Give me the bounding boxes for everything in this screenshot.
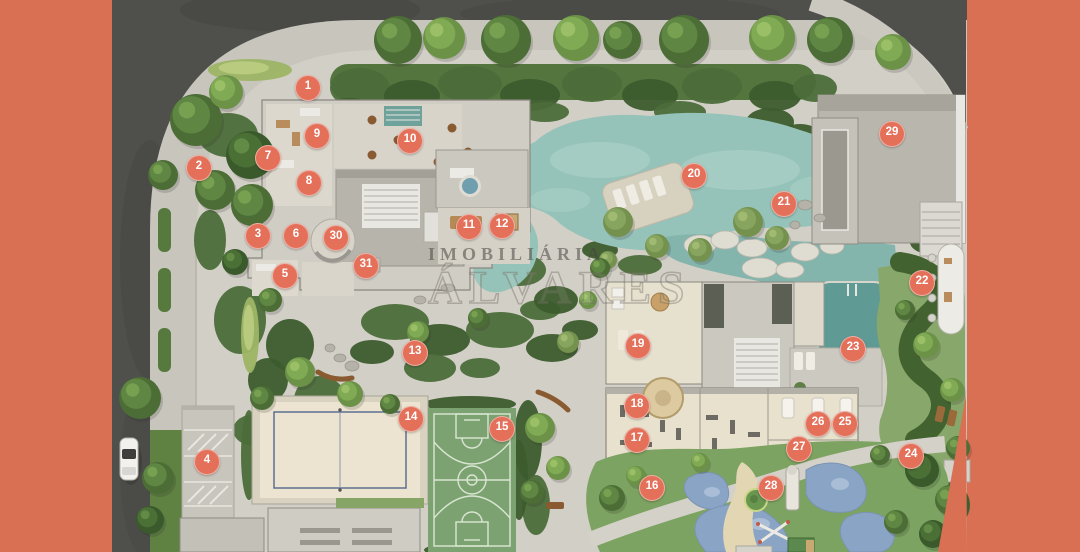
marker-17[interactable]: 17: [624, 427, 650, 453]
marker-27[interactable]: 27: [786, 436, 812, 462]
marker-22[interactable]: 22: [909, 270, 935, 296]
marker-13[interactable]: 13: [402, 340, 428, 366]
marker-5[interactable]: 5: [272, 263, 298, 289]
marker-24[interactable]: 24: [898, 443, 924, 469]
marker-28[interactable]: 28: [758, 475, 784, 501]
marker-23[interactable]: 23: [840, 336, 866, 362]
marker-31[interactable]: 31: [353, 253, 379, 279]
marker-2[interactable]: 2: [186, 155, 212, 181]
marker-29[interactable]: 29: [879, 121, 905, 147]
marker-4[interactable]: 4: [194, 449, 220, 475]
marker-25[interactable]: 25: [832, 411, 858, 437]
marker-7[interactable]: 7: [255, 145, 281, 171]
marker-6[interactable]: 6: [283, 223, 309, 249]
marker-12[interactable]: 12: [489, 213, 515, 239]
marker-30[interactable]: 30: [323, 225, 349, 251]
marker-9[interactable]: 9: [304, 123, 330, 149]
marker-11[interactable]: 11: [456, 214, 482, 240]
marker-20[interactable]: 20: [681, 163, 707, 189]
masterplan-canvas: IMOBILIÁRIA ÁLVARES 12345678910111213141…: [0, 0, 1080, 552]
marker-16[interactable]: 16: [639, 475, 665, 501]
marker-15[interactable]: 15: [489, 416, 515, 442]
marker-3[interactable]: 3: [245, 223, 271, 249]
marker-26[interactable]: 26: [805, 411, 831, 437]
marker-1[interactable]: 1: [295, 75, 321, 101]
marker-18[interactable]: 18: [624, 393, 650, 419]
marker-8[interactable]: 8: [296, 170, 322, 196]
marker-21[interactable]: 21: [771, 191, 797, 217]
marker-10[interactable]: 10: [397, 128, 423, 154]
marker-14[interactable]: 14: [398, 406, 424, 432]
marker-19[interactable]: 19: [625, 333, 651, 359]
